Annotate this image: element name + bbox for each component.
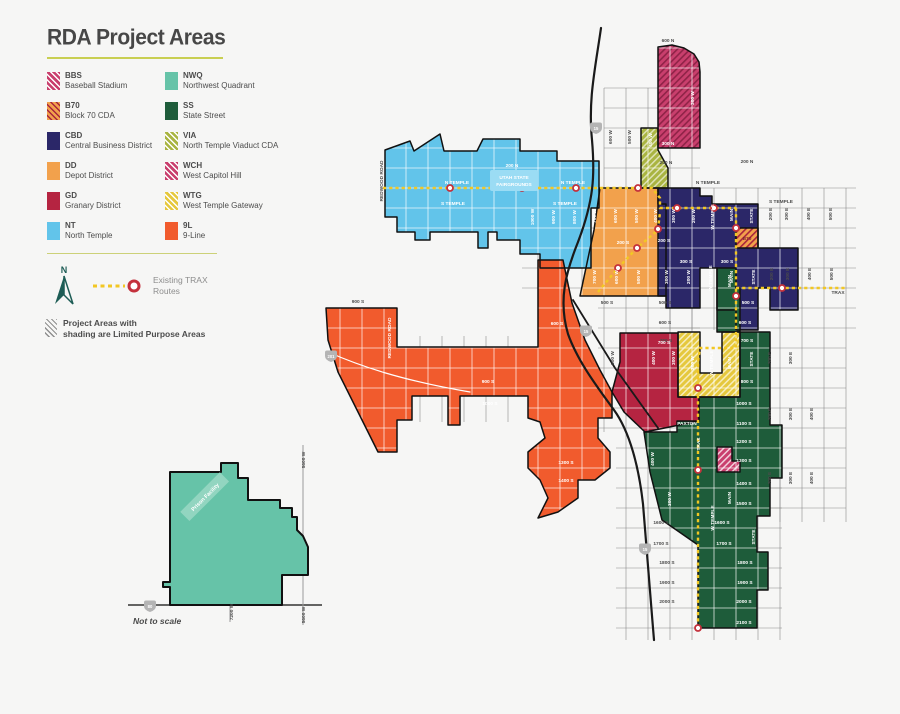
street-label: 600 S xyxy=(739,320,752,326)
legend-item-9l: 9L9-Line xyxy=(165,221,335,241)
street-label: 600 N xyxy=(662,38,675,44)
svg-text:15: 15 xyxy=(594,126,599,131)
street-label: MAIN xyxy=(727,356,733,369)
legend-label-cbd: CBDCentral Business District xyxy=(65,131,152,151)
legend-panel: RDA Project Areas BBSBaseball StadiumNWQ… xyxy=(45,26,335,340)
trax-station xyxy=(779,285,785,291)
street-label: 400 W xyxy=(653,209,659,223)
northwest-quadrant-inset: Prison Facility5600 W7200 W5600 W80Not t… xyxy=(128,445,322,626)
street-label: 200 N xyxy=(741,159,754,165)
street-label: 300 N xyxy=(662,141,675,147)
street-label: 500 S xyxy=(601,300,614,306)
legend-item-bbs: BBSBaseball Stadium xyxy=(47,71,165,91)
street-label: 500 W xyxy=(610,351,616,365)
street-label: 1000 W xyxy=(530,208,536,225)
street-label: 500 S xyxy=(742,300,755,306)
legend-swatch-cbd xyxy=(47,132,60,150)
street-label: 200 S xyxy=(617,240,630,246)
street-label: 400 E xyxy=(806,207,812,220)
street-label: 200 N xyxy=(660,160,673,166)
legend-swatch-9l xyxy=(165,222,178,240)
trax-station xyxy=(733,293,739,299)
legend-swatch-wtg xyxy=(165,192,178,210)
limited-purpose-note-text: Project Areas with shading are Limited P… xyxy=(63,318,205,340)
street-label: W TEMPLE xyxy=(709,350,715,376)
street-label: 300 W xyxy=(671,209,677,223)
street-label: N TEMPLE xyxy=(561,180,586,186)
legend-label-nt: NTNorth Temple xyxy=(65,221,112,241)
street-label: 1500 S xyxy=(736,501,752,507)
street-label: 700 S xyxy=(741,338,754,344)
legend-divider xyxy=(47,253,217,254)
street-label: 1400 S xyxy=(558,478,574,484)
street-label: 300 W xyxy=(690,91,696,105)
street-label: 600 S xyxy=(551,321,564,327)
legend-swatch-wch xyxy=(165,162,178,180)
street-label: 200 E xyxy=(767,351,773,364)
trax-station xyxy=(695,625,701,631)
legend-swatch-nt xyxy=(47,222,60,240)
highway-shield-icon: 15 xyxy=(639,544,651,556)
street-label: 600 W xyxy=(614,270,620,284)
legend-swatch-ss xyxy=(165,102,178,120)
street-label: 700 S xyxy=(658,340,671,346)
trax-station xyxy=(695,467,701,473)
legend-item-wtg: WTGWest Temple Gateway xyxy=(165,191,335,211)
street-label: 1700 S xyxy=(653,541,669,547)
trax-legend-text: Existing TRAX Routes xyxy=(153,275,208,297)
legend-label-bbs: BBSBaseball Stadium xyxy=(65,71,127,91)
street-label: 300 W xyxy=(671,351,677,365)
legend-item-via: VIANorth Temple Viaduct CDA xyxy=(165,131,335,151)
street-label: 200 W xyxy=(686,270,692,284)
street-label: 1600 S xyxy=(714,520,730,526)
trax-station xyxy=(635,185,641,191)
legend-swatch-gd xyxy=(47,192,60,210)
street-label: 200 E xyxy=(768,207,774,220)
street-label: 500 W xyxy=(634,209,640,223)
street-label: W TEMPLE xyxy=(710,505,716,531)
legend-swatch-b70 xyxy=(47,102,60,120)
svg-text:201: 201 xyxy=(328,354,336,359)
legend-swatch-dd xyxy=(47,162,60,180)
street-label: 200 N xyxy=(506,163,519,169)
title-underline xyxy=(47,57,223,59)
street-label: 500 W xyxy=(636,270,642,284)
street-label: 1800 S xyxy=(659,560,675,566)
street-label: TRAX xyxy=(696,437,702,451)
fairgrounds-label: FAIRGROUNDS xyxy=(496,182,532,188)
street-label: 600 W xyxy=(608,130,614,144)
legend-swatch-bbs xyxy=(47,72,60,90)
street-label: 300 E xyxy=(784,207,790,220)
street-label: W TEMPLE xyxy=(708,265,714,291)
legend-label-gd: GDGranary District xyxy=(65,191,121,211)
street-label: 900 W xyxy=(551,210,557,224)
legend-item-gd: GDGranary District xyxy=(47,191,165,211)
svg-text:15: 15 xyxy=(584,329,589,334)
street-label: B70 xyxy=(743,236,752,242)
street-label: REDWOOD ROAD xyxy=(379,160,385,202)
legend-label-wch: WCHWest Capitol Hill xyxy=(183,161,242,181)
legend-item-nt: NTNorth Temple xyxy=(47,221,165,241)
street-label: MAIN xyxy=(729,208,735,221)
street-label: 500 E xyxy=(829,267,835,280)
legend-label-9l: 9L9-Line xyxy=(183,221,205,241)
street-label: 300 S xyxy=(680,259,693,265)
street-label: 900 S xyxy=(352,299,365,305)
street-label: 500 S xyxy=(659,300,672,306)
legend-item-cbd: CBDCentral Business District xyxy=(47,131,165,151)
street-label: 900 S xyxy=(482,379,495,385)
legend-label-ss: SSState Street xyxy=(183,101,225,121)
legend-item-dd: DDDepot District xyxy=(47,161,165,181)
north-arrow-label: N xyxy=(61,265,68,275)
street-label: 400 W xyxy=(651,351,657,365)
legend-swatch-nwq xyxy=(165,72,178,90)
street-label: 300 W xyxy=(664,270,670,284)
street-label: 500 W xyxy=(627,130,633,144)
trax-route-icon xyxy=(91,279,143,293)
highway-shield-icon: 80 xyxy=(144,601,156,613)
street-label: 500 E xyxy=(828,207,834,220)
inset-street-label: 5600 W xyxy=(301,451,307,468)
inset-street-label: 7200 W xyxy=(229,603,235,620)
street-label: 1900 S xyxy=(659,580,675,586)
legend-label-dd: DDDepot District xyxy=(65,161,113,181)
street-label: 1000 S xyxy=(736,401,752,407)
street-label: TRAX xyxy=(831,290,845,296)
street-label: N TEMPLE xyxy=(445,180,470,186)
street-label: REDWOOD ROAD xyxy=(387,317,393,359)
street-label: 1800 S xyxy=(737,560,753,566)
street-label: STATE xyxy=(749,208,755,224)
street-label: 1700 S xyxy=(716,541,732,547)
street-label: MAIN xyxy=(727,274,733,287)
street-label: 600 S xyxy=(659,320,672,326)
inset-street-label: 5600 W xyxy=(301,606,307,623)
legend-swatch-via xyxy=(165,132,178,150)
page-title: RDA Project Areas xyxy=(47,26,335,51)
street-label: 1300 S xyxy=(558,460,574,466)
legend-items: BBSBaseball StadiumNWQNorthwest Quadrant… xyxy=(47,71,335,241)
legend-label-via: VIANorth Temple Viaduct CDA xyxy=(183,131,278,151)
street-label: 200 E xyxy=(767,407,773,420)
street-label: 400 W xyxy=(648,133,654,147)
street-label: 400 E xyxy=(809,471,815,484)
fairgrounds-label: UTAH STATE xyxy=(499,175,529,181)
svg-text:15: 15 xyxy=(643,547,648,552)
street-label: 200 W xyxy=(690,356,696,370)
trax-station xyxy=(733,225,739,231)
legend-label-nwq: NWQNorthwest Quadrant xyxy=(183,71,255,91)
region-northwest-quadrant xyxy=(163,463,308,605)
legend-item-ss: SSState Street xyxy=(165,101,335,121)
street-label: 400 E xyxy=(809,407,815,420)
street-label: 1100 S xyxy=(737,421,753,427)
street-label: 300 E xyxy=(788,407,794,420)
trax-station xyxy=(695,385,701,391)
street-label: 700 W xyxy=(592,209,598,223)
street-label: 400 E xyxy=(807,267,813,280)
street-label: 600 W xyxy=(613,209,619,223)
street-label: STATE xyxy=(751,269,757,285)
street-label: STATE xyxy=(749,351,755,367)
legend-item-b70: B70Block 70 CDA xyxy=(47,101,165,121)
street-label: 200 S xyxy=(658,238,671,244)
street-label: 400 W xyxy=(650,452,656,466)
trax-station xyxy=(634,245,640,251)
street-label: S TEMPLE xyxy=(769,199,794,205)
street-label: 2000 S xyxy=(659,599,675,605)
street-label: 1300 S xyxy=(736,458,752,464)
legend-item-nwq: NWQNorthwest Quadrant xyxy=(165,71,335,91)
street-label: 300 E xyxy=(788,351,794,364)
legend-label-b70: B70Block 70 CDA xyxy=(65,101,115,121)
trax-legend-row: N Existing TRAX Routes xyxy=(47,264,335,308)
street-label: 800 S xyxy=(741,379,754,385)
svg-text:80: 80 xyxy=(148,604,153,609)
street-label: STATE xyxy=(751,529,757,545)
legend-item-wch: WCHWest Capitol Hill xyxy=(165,161,335,181)
trax-station xyxy=(655,226,661,232)
street-label: 200 E xyxy=(767,471,773,484)
north-arrow-icon: N xyxy=(47,264,81,308)
street-label: S TEMPLE xyxy=(441,201,466,207)
street-label: 200 E xyxy=(769,267,775,280)
legend-label-wtg: WTGWest Temple Gateway xyxy=(183,191,263,211)
street-label: 1000 S xyxy=(482,401,498,407)
street-label: 1200 S xyxy=(736,439,752,445)
street-label: 2100 S xyxy=(736,620,752,626)
limited-purpose-note: Project Areas with shading are Limited P… xyxy=(45,318,335,340)
street-label: 300 E xyxy=(788,471,794,484)
street-label: N TEMPLE xyxy=(696,180,721,186)
street-label: 2000 S xyxy=(736,599,752,605)
street-label: 700 W xyxy=(592,270,598,284)
street-label: 300 W xyxy=(667,492,673,506)
street-label: PAXTON xyxy=(677,421,697,427)
street-label: 200 W xyxy=(691,209,697,223)
street-label: MAIN xyxy=(727,491,733,504)
limited-purpose-hatch-icon xyxy=(45,319,57,337)
street-label: 1900 S xyxy=(737,580,753,586)
map-annotations: UTAH STATEFAIRGROUNDS xyxy=(490,170,538,191)
street-label: 300 E xyxy=(785,267,791,280)
street-label: 1400 S xyxy=(736,481,752,487)
street-label: 300 S xyxy=(721,259,734,265)
street-label: 1600 S xyxy=(653,520,669,526)
not-to-scale-label: Not to scale xyxy=(133,616,181,626)
street-label: 800 W xyxy=(572,210,578,224)
street-label: S TEMPLE xyxy=(553,201,578,207)
street-label: W TEMPLE xyxy=(710,204,716,230)
